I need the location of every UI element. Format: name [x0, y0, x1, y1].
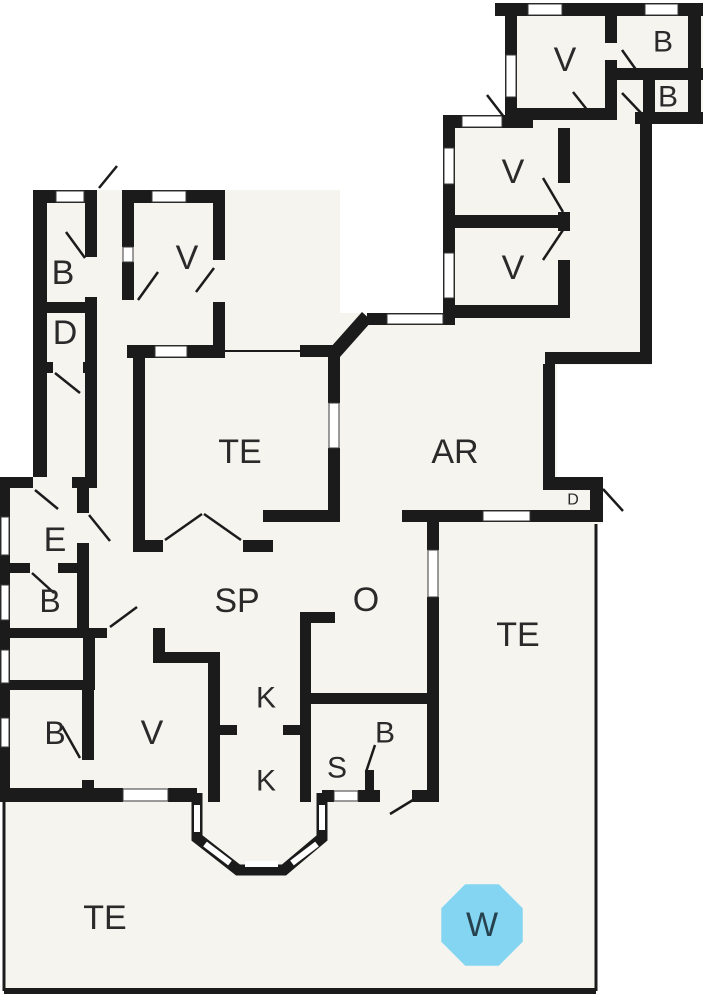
- room-label-ar-4: AR: [431, 433, 478, 471]
- room-label-s-18: S: [327, 752, 347, 785]
- wall: [558, 212, 570, 231]
- window: [444, 148, 454, 184]
- room-label-k-17: K: [256, 765, 276, 798]
- window: [1, 650, 9, 683]
- wall: [213, 203, 225, 260]
- wall: [10, 788, 123, 802]
- room-label-v-2: V: [176, 239, 199, 277]
- window: [528, 4, 562, 15]
- wall: [133, 345, 145, 552]
- room-label-b-7: B: [658, 81, 678, 114]
- wall: [443, 215, 570, 228]
- window: [1, 517, 9, 555]
- wall: [328, 448, 340, 517]
- wall: [455, 305, 570, 318]
- wall: [617, 68, 703, 80]
- room-label-v-13: V: [141, 714, 164, 752]
- floor-area: [443, 115, 652, 365]
- wall: [558, 128, 570, 183]
- wall: [605, 3, 617, 43]
- room-label-te-3: TE: [218, 433, 261, 471]
- wall: [122, 262, 134, 300]
- window: [387, 314, 443, 324]
- wall: [33, 362, 53, 373]
- wall: [427, 512, 439, 550]
- floor-plan: BDVTEARVBBVVEBBVSPOKKSBDTETEW: [0, 0, 703, 1000]
- wall: [0, 477, 33, 488]
- wall: [85, 190, 97, 257]
- wall: [358, 790, 380, 802]
- room-label-b-19: B: [375, 717, 395, 750]
- window: [1, 718, 9, 747]
- wall: [208, 663, 220, 802]
- floor-plan-svg: BDVTEARVBBVVEBBVSPOKKSBDTETEW: [0, 0, 703, 1000]
- room-label-v-9: V: [502, 249, 525, 287]
- wall: [153, 652, 220, 663]
- room-label-b-6: B: [653, 26, 673, 59]
- wall: [168, 788, 197, 802]
- wall: [82, 690, 94, 760]
- room-label-k-16: K: [256, 682, 276, 715]
- wall: [545, 352, 652, 364]
- wall: [305, 693, 428, 704]
- room-label-o-15: O: [353, 581, 379, 619]
- wall: [543, 364, 555, 490]
- room-label-sp-14: SP: [214, 582, 259, 620]
- spa-marker: W: [441, 884, 522, 965]
- room-label-v-8: V: [502, 153, 525, 191]
- wall: [322, 790, 334, 802]
- wall: [328, 352, 340, 403]
- wall: [558, 260, 570, 306]
- wall: [635, 112, 703, 124]
- wall: [263, 510, 340, 522]
- wall: [640, 124, 652, 364]
- wall: [133, 540, 163, 552]
- window: [444, 253, 454, 298]
- window: [645, 4, 678, 15]
- wall: [58, 563, 77, 573]
- spa-marker-label: W: [466, 906, 498, 944]
- window: [123, 247, 133, 262]
- room-label-te-21: TE: [496, 616, 539, 654]
- wall: [10, 680, 87, 690]
- window: [462, 116, 502, 127]
- window: [152, 191, 186, 202]
- wall: [77, 477, 89, 513]
- room-label-b-0: B: [52, 254, 75, 292]
- wall: [33, 190, 47, 477]
- wall: [83, 362, 97, 373]
- window: [334, 791, 358, 801]
- window: [506, 55, 516, 97]
- room-label-b-12: B: [44, 715, 65, 751]
- room-label-d-1: D: [53, 314, 78, 352]
- window: [155, 346, 187, 357]
- wall: [688, 3, 701, 124]
- wall: [365, 770, 374, 792]
- wall: [77, 543, 89, 563]
- wall: [427, 597, 439, 802]
- wall: [77, 563, 89, 628]
- wall: [300, 612, 335, 623]
- window: [483, 511, 530, 521]
- wall: [10, 563, 30, 573]
- window: [56, 191, 84, 202]
- room-label-v-5: V: [554, 41, 577, 79]
- wall: [85, 362, 97, 477]
- room-label-te-22: TE: [83, 899, 126, 937]
- wall: [243, 540, 273, 552]
- room-label-b-11: B: [39, 583, 60, 619]
- room-label-d-20: D: [567, 492, 579, 509]
- wall: [605, 60, 617, 120]
- window: [428, 550, 438, 597]
- window: [1, 585, 9, 620]
- wall: [283, 725, 311, 735]
- wall: [122, 203, 134, 247]
- window: [329, 403, 339, 448]
- wall: [33, 302, 97, 313]
- wall: [213, 302, 225, 347]
- wall: [543, 477, 603, 490]
- wall: [300, 612, 311, 802]
- room-label-e-10: E: [44, 521, 67, 559]
- window: [123, 789, 168, 801]
